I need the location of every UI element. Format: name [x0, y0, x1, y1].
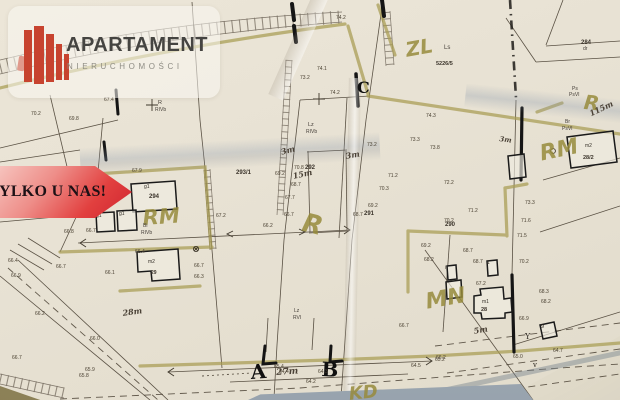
spot-height: 66.7	[12, 356, 22, 361]
spot-height: 72.2	[444, 181, 454, 186]
land-use-label: RIVb	[306, 130, 317, 135]
building-label: g1	[144, 185, 150, 190]
parcel-number: 294	[149, 194, 159, 200]
spot-height: 74.1	[317, 67, 327, 72]
spot-height: 68.7	[463, 249, 473, 254]
land-use-label: Br	[565, 120, 570, 125]
spot-height: 71.2	[468, 209, 478, 214]
land-use-label: RIVb	[155, 108, 166, 113]
spot-height: 66.4	[135, 250, 145, 255]
land-use-label: Bi	[143, 224, 147, 229]
spot-height: 66.7	[399, 324, 409, 329]
spot-height: 66.8	[64, 230, 74, 235]
spot-height: 74.2	[336, 16, 346, 21]
parcel-number: 28	[481, 308, 487, 314]
land-use-label: Lz	[294, 309, 299, 314]
measurement-label: 3m	[499, 135, 512, 144]
spot-height: 73.3	[410, 138, 420, 143]
spot-height: 73.3	[525, 201, 535, 206]
parcel-number: 5226/5	[436, 62, 453, 68]
spot-height: 66.3	[194, 275, 204, 280]
spot-height: 68.7	[353, 213, 363, 218]
land-use-label: PsVI	[562, 127, 573, 132]
agency-tagline: NIERUCHOMOŚCI	[67, 62, 183, 71]
zone-label: RM	[538, 136, 581, 166]
spot-height: 66.7	[56, 265, 66, 270]
land-use-label: RVI	[293, 316, 301, 321]
spot-height: 66.9	[11, 274, 21, 279]
spot-height: 70.2	[444, 219, 454, 224]
spot-height: 69.2	[368, 204, 378, 209]
measurement-label: 3m	[280, 144, 296, 155]
spot-height: 66.1	[105, 271, 115, 276]
spot-height: 74.2	[330, 91, 340, 96]
spot-height: 73.8	[430, 146, 440, 151]
spot-height: 67.4	[104, 98, 114, 103]
zone-label: RM	[142, 205, 180, 229]
spot-height: 71.5	[517, 234, 527, 239]
spot-height: 74.3	[426, 114, 436, 119]
spot-height: 64.7	[553, 349, 563, 354]
spot-height: 66.7	[284, 213, 294, 218]
spot-height: 67.2	[216, 214, 226, 219]
spot-height: 70.2	[519, 260, 529, 265]
spot-height: 67.9	[132, 169, 142, 174]
spot-height: 66.7	[86, 229, 96, 234]
measurement-label: 3m	[345, 150, 360, 160]
building-label: m2	[148, 260, 155, 265]
spot-height: 64.3	[318, 370, 328, 375]
spot-height: 68.7	[291, 183, 301, 188]
listing-photo-cadastral-map: ZLRRMRMRMNKDCAB3m3m15m28m5m27m115m3m2845…	[0, 0, 620, 400]
spot-height: 67.7	[285, 196, 295, 201]
land-use-label: RIVb	[141, 231, 152, 236]
parcel-number: 291	[364, 211, 374, 217]
land-use-label: dr	[583, 47, 587, 52]
spot-height: 66.9	[519, 317, 529, 322]
parcel-number: 29	[151, 271, 157, 276]
spot-height: 70.2	[31, 112, 41, 117]
building-label: 9	[541, 325, 544, 331]
spot-height: 68.7	[473, 260, 483, 265]
land-use-label: PsVI	[569, 93, 580, 98]
spot-height: 73.2	[367, 143, 377, 148]
ribbon-text: TYLKO U NAS!	[0, 183, 106, 201]
spot-height: 73.2	[300, 76, 310, 81]
building-label: m2	[585, 144, 592, 149]
parcel-number: 28/2	[583, 156, 594, 162]
spot-height: 66.2	[35, 312, 45, 317]
zone-label: MN	[424, 285, 468, 314]
building-label: i	[445, 266, 446, 271]
spot-height: 68.2	[541, 300, 551, 305]
spot-height: 70.3	[379, 187, 389, 192]
agency-logo-panel: APARTAMENT NIERUCHOMOŚCI	[8, 6, 220, 98]
spot-height: 71.2	[388, 174, 398, 179]
spot-height: 64.2	[306, 380, 316, 385]
spot-height: 71.6	[521, 219, 531, 224]
spot-height: 69.8	[69, 117, 79, 122]
spot-height: 66.2	[263, 224, 273, 229]
spot-height: 64.4	[279, 370, 289, 375]
zone-label: R	[300, 210, 326, 240]
map-symbol: Y	[525, 333, 530, 341]
spot-height: 66.4	[8, 259, 18, 264]
map-symbol: v	[533, 362, 537, 369]
spot-height: 66.0	[90, 337, 100, 342]
measurement-label: 28m	[122, 306, 143, 317]
zone-label: KD	[348, 383, 379, 400]
agency-name: APARTAMENT	[66, 34, 208, 57]
land-use-label: Lz	[308, 123, 314, 129]
spot-height: 69.2	[275, 172, 285, 177]
spot-height: 67.2	[476, 282, 486, 287]
parcel-number: 293/1	[236, 170, 251, 176]
spot-height: 68.2	[424, 258, 434, 263]
spot-height: 68.3	[539, 290, 549, 295]
spot-height: 65.2	[435, 358, 445, 363]
spot-height: 65.8	[79, 374, 89, 379]
section-letter: C	[357, 80, 370, 96]
section-letter: A	[250, 361, 267, 382]
zone-label: ZL	[404, 35, 434, 59]
building-label: m1	[482, 300, 489, 305]
building-label: 1	[487, 261, 490, 266]
spot-height: 64.5	[411, 364, 421, 369]
building-label: g1	[119, 212, 125, 217]
spot-height: 69.2	[421, 244, 431, 249]
spot-height: 65.0	[513, 355, 523, 360]
parcel-number: 292	[305, 165, 315, 171]
land-use-label: R	[158, 101, 162, 107]
measurement-label: 5m	[473, 325, 488, 335]
land-use-label: Ls	[444, 45, 450, 51]
spot-height: 66.7	[194, 264, 204, 269]
building-label: i	[446, 283, 447, 288]
spot-height: 70.8	[294, 166, 304, 171]
